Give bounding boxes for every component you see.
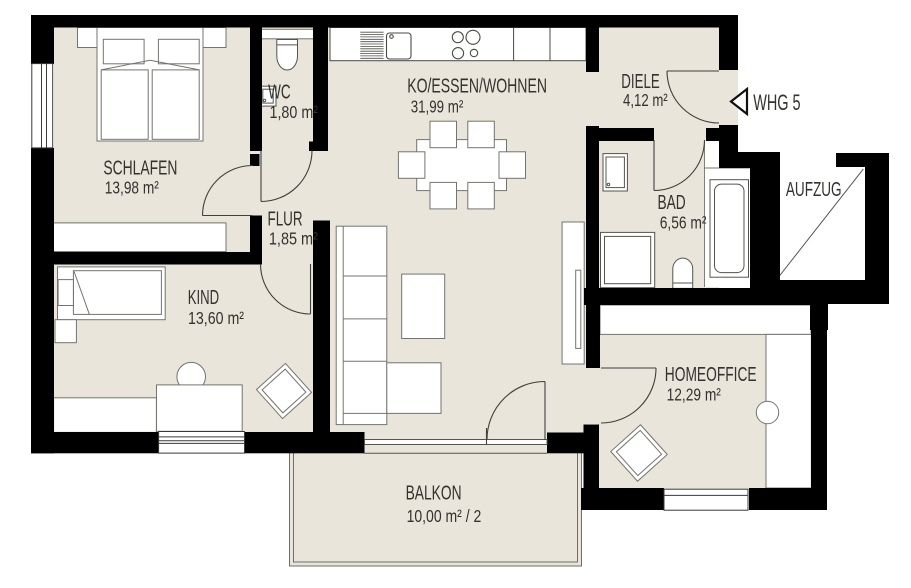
svg-text:1,85 m²: 1,85 m² (269, 229, 318, 249)
svg-text:FLUR: FLUR (268, 209, 303, 231)
svg-text:HOMEOFFICE: HOMEOFFICE (665, 364, 757, 386)
svg-text:31,99 m²: 31,99 m² (411, 96, 464, 116)
svg-text:WHG 5: WHG 5 (753, 90, 800, 115)
svg-text:WC: WC (268, 82, 291, 104)
svg-text:10,00 m² / 2: 10,00 m² / 2 (407, 506, 482, 526)
svg-text:12,29 m²: 12,29 m² (667, 384, 721, 404)
svg-text:6,56 m²: 6,56 m² (660, 213, 707, 233)
svg-text:1,80 m²: 1,80 m² (270, 102, 319, 122)
svg-text:BALKON: BALKON (406, 483, 462, 505)
svg-text:AUFZUG: AUFZUG (786, 179, 842, 201)
svg-text:BAD: BAD (658, 192, 686, 214)
svg-text:13,60 m²: 13,60 m² (188, 308, 244, 328)
svg-text:4,12 m²: 4,12 m² (623, 90, 668, 110)
svg-text:13,98 m²: 13,98 m² (105, 178, 159, 198)
svg-text:KO/ESSEN/WOHNEN: KO/ESSEN/WOHNEN (407, 76, 547, 98)
svg-text:SCHLAFEN: SCHLAFEN (103, 157, 177, 179)
svg-text:KIND: KIND (188, 287, 219, 309)
